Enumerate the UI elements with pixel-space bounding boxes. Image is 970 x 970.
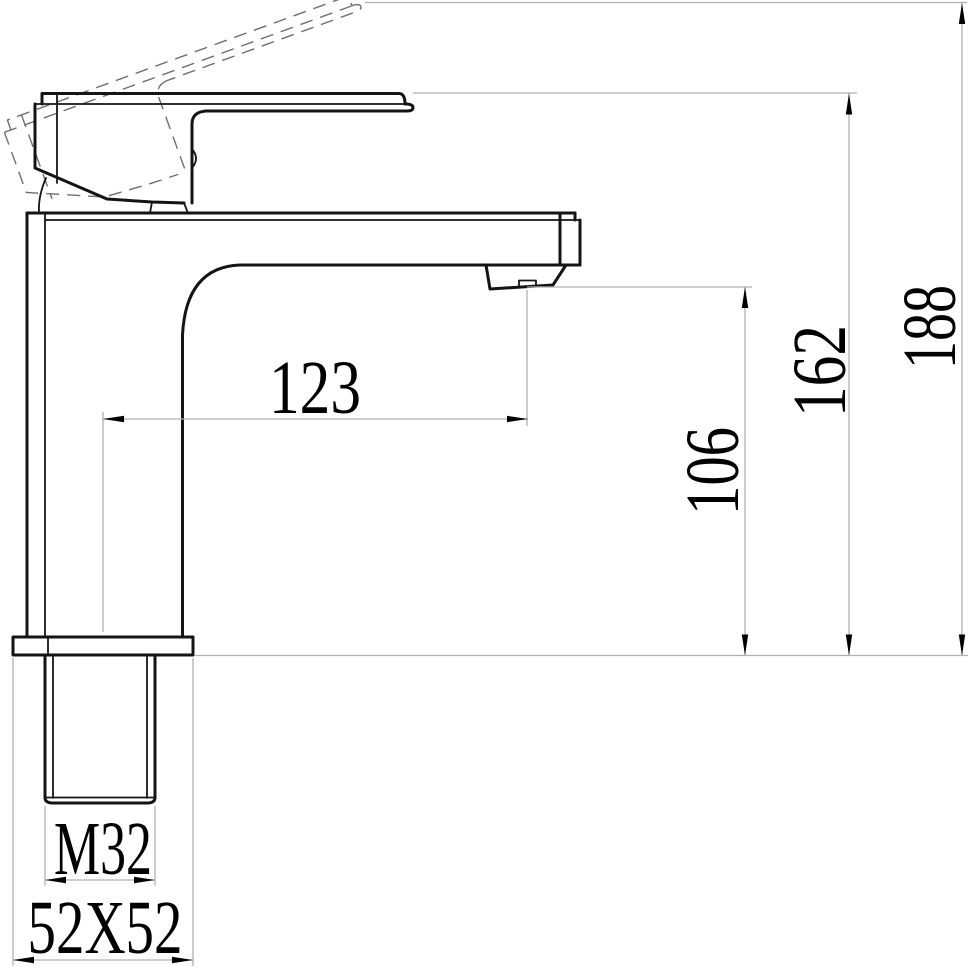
arrowhead	[103, 416, 124, 422]
dim-base-label: 52X52	[28, 886, 183, 970]
arrowhead	[959, 635, 965, 656]
spout-underside-and-column	[183, 265, 581, 637]
arrowhead	[846, 94, 852, 115]
handle-lever-top	[42, 94, 405, 105]
arrowhead	[742, 287, 748, 308]
handle-body-right-edge	[192, 111, 206, 203]
handle-base-arc	[39, 178, 46, 213]
ghost-body-inner	[21, 115, 52, 199]
technical-drawing-canvas: 123 106 162 188 M32 52X52	[0, 0, 970, 970]
handle-collar-left	[150, 202, 152, 213]
spout-outlet-lip	[486, 265, 566, 289]
arrowhead	[742, 635, 748, 656]
dim-overall-height-label: 188	[888, 285, 970, 369]
dim-handle-height-label: 162	[778, 325, 862, 417]
arrowhead	[507, 416, 528, 422]
base-plate	[13, 637, 193, 655]
faucet-outline	[13, 94, 580, 804]
dim-outlet-height-label: 106	[671, 427, 755, 515]
dimension-lines	[13, 3, 968, 967]
handle-lever-cap	[206, 104, 413, 111]
faucet-dimension-drawing: 123 106 162 188 M32 52X52	[0, 0, 970, 970]
dimension-labels: 123 106 162 188 M32 52X52	[28, 285, 970, 970]
arrowhead	[846, 635, 852, 656]
ghost-lever-cap	[165, 3, 362, 80]
dim-spout-reach-label: 123	[269, 346, 361, 430]
dim-thread-label: M32	[54, 807, 152, 891]
arrowhead	[959, 3, 965, 24]
